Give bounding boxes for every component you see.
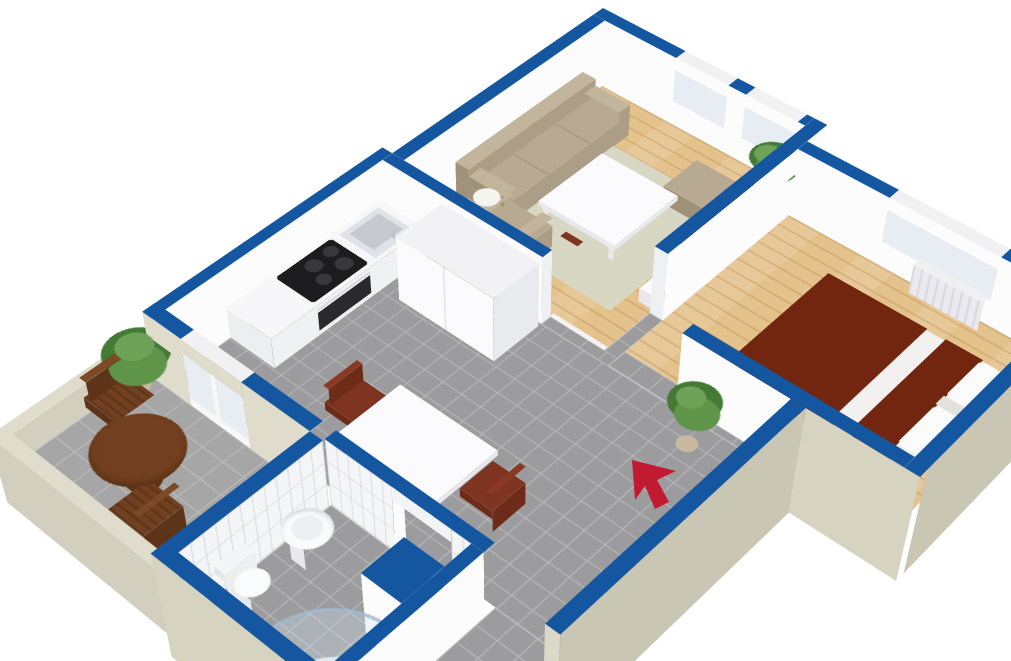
- scene-3d: [0, 0, 1011, 661]
- entrance-arrow-shape: [632, 460, 676, 509]
- floor-plan-stage: [0, 0, 1011, 661]
- wall-end-cap: [541, 250, 552, 324]
- entrance-arrow-icon: [626, 452, 688, 518]
